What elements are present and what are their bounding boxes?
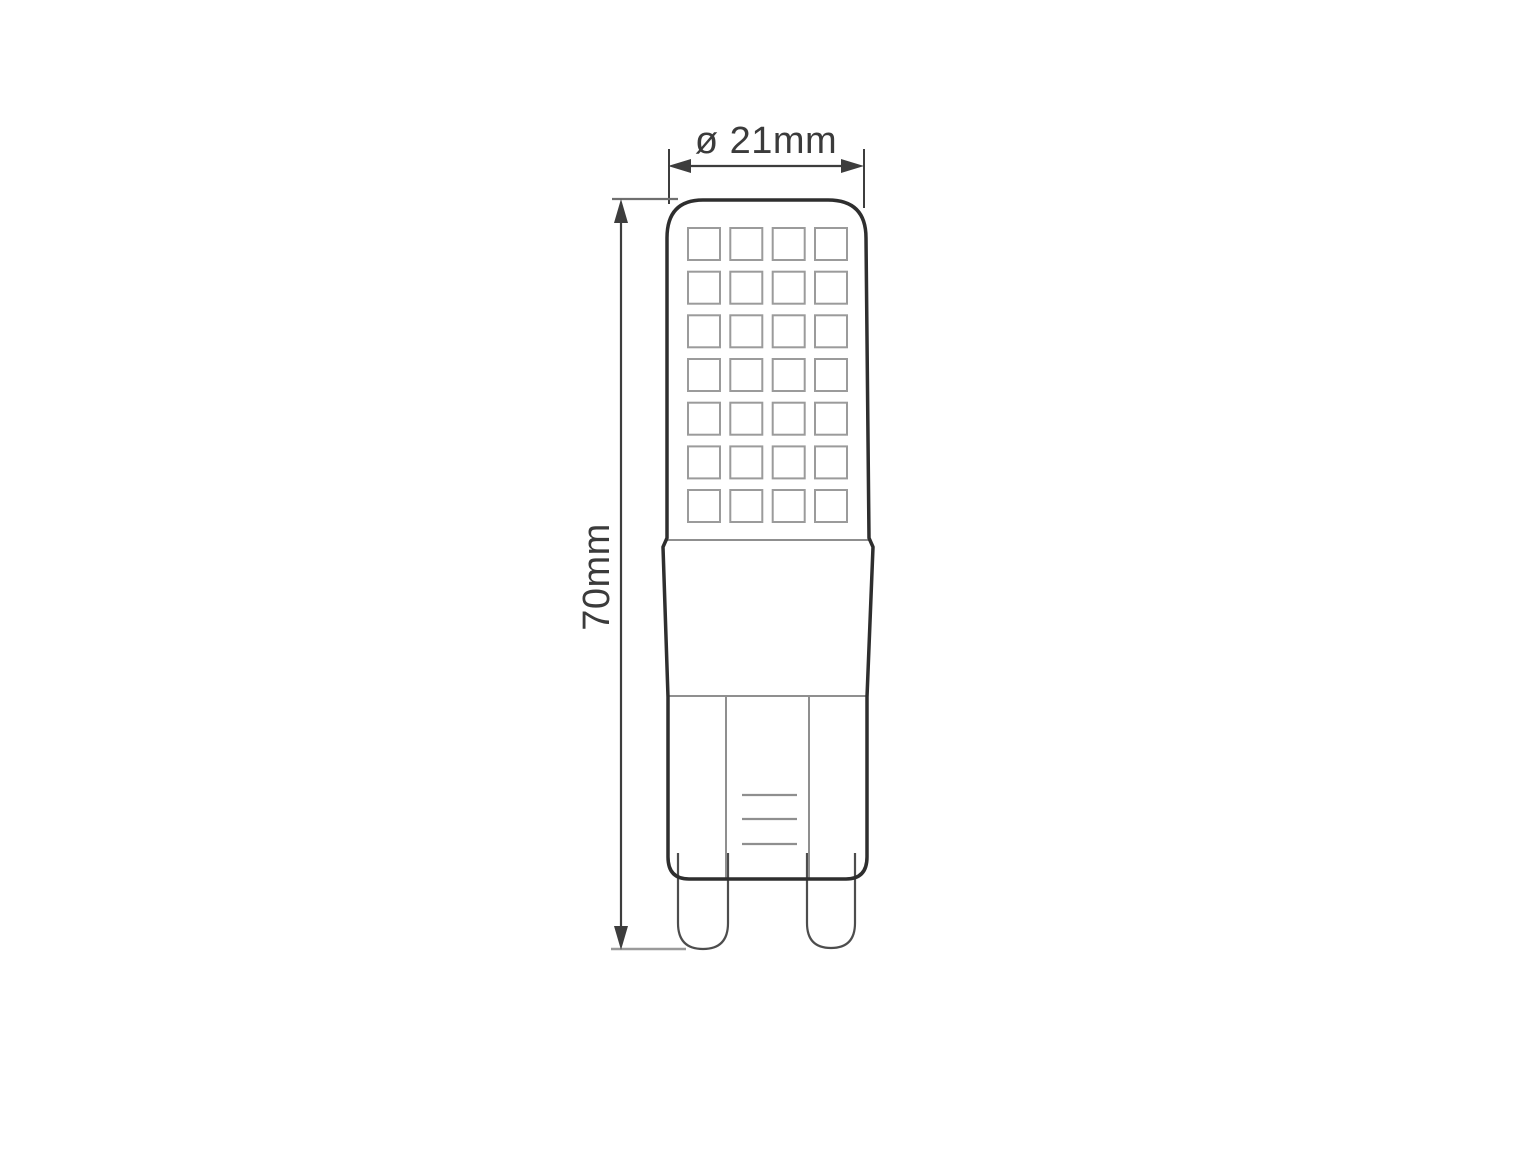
bulb-dimension-diagram: ø 21mm 70mm — [0, 0, 1540, 1157]
diameter-label: ø 21mm — [695, 120, 837, 162]
diagram-canvas: ø 21mm 70mm — [0, 0, 1540, 1157]
diagram-background — [0, 0, 1540, 1157]
height-label: 70mm — [576, 523, 618, 631]
